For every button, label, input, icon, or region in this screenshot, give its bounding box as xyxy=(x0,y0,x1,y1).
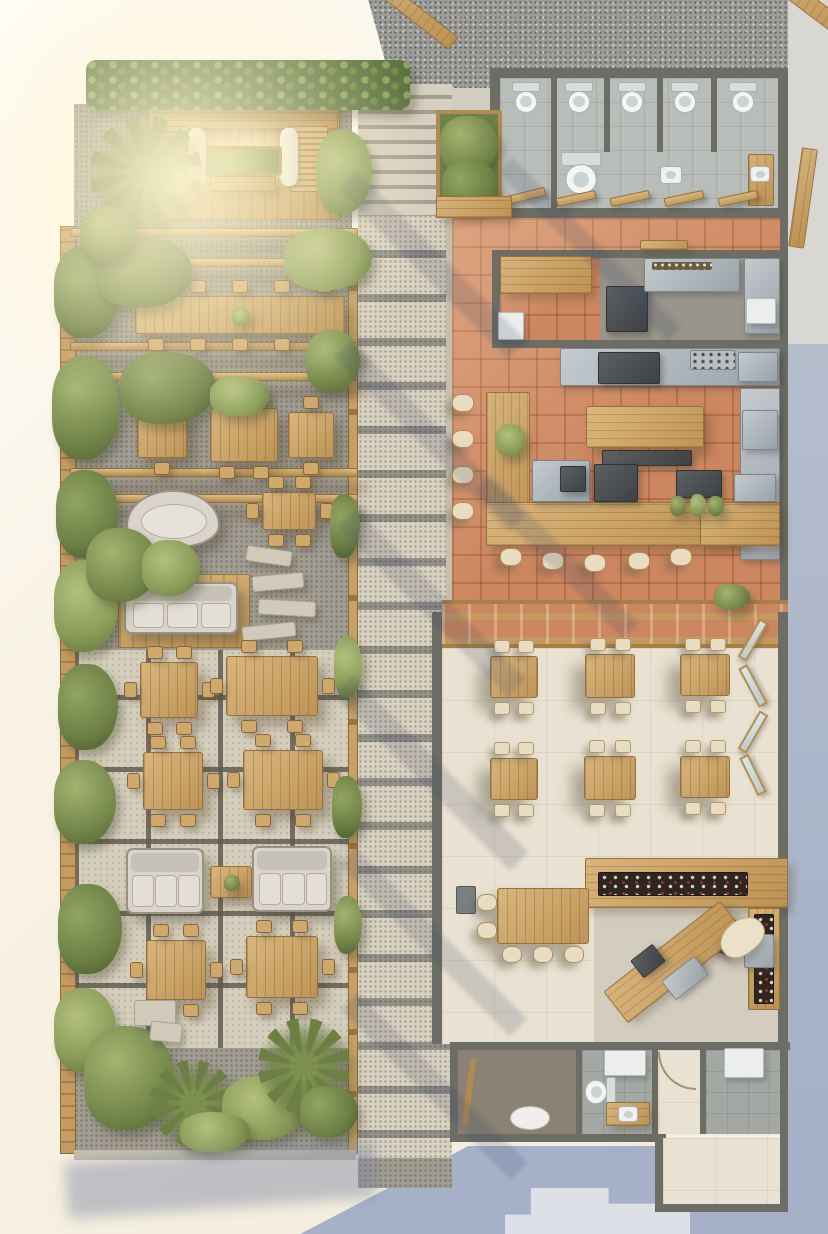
plant xyxy=(180,1112,250,1152)
chair xyxy=(303,462,319,475)
bar-stool xyxy=(670,548,692,566)
outdoor-table xyxy=(288,412,334,458)
plant xyxy=(58,884,122,974)
indoor-table xyxy=(680,654,730,696)
chair xyxy=(274,280,290,293)
appliance xyxy=(606,286,648,332)
plant xyxy=(316,130,372,214)
plant xyxy=(334,896,362,954)
chair xyxy=(615,740,631,753)
bar-stool xyxy=(584,554,606,572)
chair xyxy=(130,962,143,978)
indoor-table xyxy=(585,654,635,698)
plant xyxy=(58,664,118,750)
outdoor-table xyxy=(246,936,318,998)
bar-stool xyxy=(500,548,522,566)
chair xyxy=(127,773,140,789)
chair xyxy=(295,534,311,547)
appliance xyxy=(560,466,586,492)
chair xyxy=(518,742,534,755)
indoor-table xyxy=(680,756,730,798)
chair xyxy=(494,804,510,817)
chair xyxy=(190,280,206,293)
outdoor-table xyxy=(146,940,206,1000)
chair xyxy=(710,802,726,815)
chair xyxy=(183,924,199,937)
chair xyxy=(268,534,284,547)
wood-counter xyxy=(436,196,512,218)
chair xyxy=(176,646,192,659)
trash-bin xyxy=(456,886,476,914)
bar-stool xyxy=(452,466,474,484)
wall xyxy=(657,78,663,152)
outdoor-table xyxy=(143,752,203,810)
chair xyxy=(685,802,701,815)
wall xyxy=(450,1134,666,1142)
wall xyxy=(655,1204,788,1212)
appliance xyxy=(604,1050,646,1076)
chair xyxy=(183,1004,199,1017)
plant xyxy=(52,356,120,460)
chair xyxy=(210,962,223,978)
chair xyxy=(710,740,726,753)
outdoor-table xyxy=(243,750,323,810)
sofa xyxy=(252,846,332,912)
chair xyxy=(292,1002,308,1015)
sofa xyxy=(126,848,204,914)
bar-stool xyxy=(452,502,474,520)
sink xyxy=(618,1106,638,1122)
wall xyxy=(576,1050,582,1134)
bottle-rack xyxy=(652,262,712,270)
chair xyxy=(256,1002,272,1015)
chair xyxy=(176,722,192,735)
plant xyxy=(120,352,216,424)
chair xyxy=(303,396,319,409)
chair xyxy=(241,720,257,733)
toilet xyxy=(615,82,647,112)
appliance xyxy=(598,352,660,384)
chair xyxy=(518,804,534,817)
plant xyxy=(142,540,200,596)
chair xyxy=(590,638,606,651)
chair xyxy=(148,338,164,351)
chair xyxy=(124,682,137,698)
plant xyxy=(670,496,686,516)
bar-stool xyxy=(452,430,474,448)
chair xyxy=(685,638,701,651)
chair xyxy=(494,640,510,653)
dining-floor xyxy=(663,1138,780,1204)
mop-sink xyxy=(510,1106,550,1130)
plant xyxy=(80,206,136,262)
toilet xyxy=(726,82,758,112)
plant xyxy=(496,424,526,456)
bar-stool xyxy=(477,922,497,939)
table-plant xyxy=(232,307,250,325)
toilet xyxy=(509,82,541,112)
chair xyxy=(287,720,303,733)
chair xyxy=(147,646,163,659)
chair xyxy=(295,734,311,747)
table-plant xyxy=(224,875,240,891)
plant xyxy=(330,494,360,558)
appliance xyxy=(724,1048,764,1078)
indoor-table xyxy=(584,756,636,800)
chair xyxy=(494,742,510,755)
chair xyxy=(268,476,284,489)
gravel-ground xyxy=(358,1158,452,1188)
indoor-table xyxy=(497,888,589,944)
plant xyxy=(306,330,360,392)
bar-stool xyxy=(502,946,522,963)
chair xyxy=(590,702,606,715)
wall xyxy=(432,908,442,1044)
bar-stool xyxy=(533,946,553,963)
outdoor-table xyxy=(226,656,318,716)
chair xyxy=(256,920,272,933)
toilet xyxy=(558,152,603,195)
chair xyxy=(295,814,311,827)
chair xyxy=(322,959,335,975)
indoor-table xyxy=(490,758,538,800)
hedge xyxy=(86,60,410,110)
chair xyxy=(589,740,605,753)
chair xyxy=(241,640,257,653)
bar-stool xyxy=(452,394,474,412)
toilet xyxy=(668,82,700,112)
kitchen-island xyxy=(586,406,704,448)
appliance xyxy=(738,352,778,382)
chair xyxy=(295,476,311,489)
floor-plan-render xyxy=(0,0,828,1234)
sink xyxy=(750,166,770,182)
outdoor-table xyxy=(140,662,198,718)
chair xyxy=(190,338,206,351)
chair xyxy=(615,638,631,651)
appliance xyxy=(746,298,776,324)
chair xyxy=(710,700,726,713)
wood-bench xyxy=(210,176,276,192)
outdoor-table xyxy=(262,492,316,530)
chair xyxy=(589,804,605,817)
wall xyxy=(780,1042,788,1212)
indoor-table xyxy=(490,656,538,698)
plant xyxy=(54,760,116,844)
plant xyxy=(284,228,372,290)
chair xyxy=(154,462,170,475)
chair xyxy=(615,702,631,715)
chair xyxy=(253,466,269,479)
bar-stool xyxy=(542,552,564,570)
plant xyxy=(300,1086,358,1138)
plant xyxy=(714,584,750,610)
exterior-ground xyxy=(788,344,828,1234)
bar-stool xyxy=(564,946,584,963)
wall xyxy=(450,1042,458,1142)
toilet xyxy=(562,82,594,112)
planter-trough xyxy=(206,146,282,176)
chair xyxy=(153,924,169,937)
chair xyxy=(232,280,248,293)
plant xyxy=(210,376,270,416)
bar-stool xyxy=(477,894,497,911)
curb xyxy=(446,218,452,614)
chair xyxy=(227,772,240,788)
chair xyxy=(150,814,166,827)
coffee-table xyxy=(210,866,252,898)
chair xyxy=(232,338,248,351)
wine-display xyxy=(598,872,748,896)
chair xyxy=(292,920,308,933)
chair xyxy=(494,702,510,715)
wood-counter xyxy=(640,240,688,250)
wall xyxy=(711,78,717,152)
chair xyxy=(180,814,196,827)
stepping-stone xyxy=(258,598,317,617)
stepping-stone xyxy=(149,1020,183,1043)
steel-counter xyxy=(734,474,776,502)
bar-stool xyxy=(628,552,650,570)
chair xyxy=(207,773,220,789)
wall xyxy=(652,1050,658,1134)
chair xyxy=(246,503,259,519)
chair xyxy=(147,722,163,735)
chair xyxy=(322,678,335,694)
chair xyxy=(685,740,701,753)
plant xyxy=(690,494,706,516)
chair xyxy=(287,640,303,653)
wall xyxy=(432,612,442,908)
chair xyxy=(219,466,235,479)
chair xyxy=(685,700,701,713)
chair xyxy=(615,804,631,817)
sink xyxy=(660,166,682,184)
chair xyxy=(255,734,271,747)
appliance xyxy=(594,464,638,502)
wall xyxy=(604,78,610,152)
wall xyxy=(700,1050,706,1134)
chair xyxy=(230,959,243,975)
wall xyxy=(551,78,557,152)
plant xyxy=(334,636,362,698)
glass-rack xyxy=(690,350,736,370)
chair xyxy=(255,814,271,827)
wood-counter xyxy=(500,256,592,294)
appliance xyxy=(742,410,778,450)
chair xyxy=(518,702,534,715)
chair xyxy=(518,640,534,653)
wall xyxy=(655,1134,663,1212)
chair xyxy=(710,638,726,651)
outdoor-table xyxy=(210,408,278,462)
chair xyxy=(150,736,166,749)
curtain xyxy=(280,128,298,186)
chair xyxy=(180,736,196,749)
chair xyxy=(274,338,290,351)
chair xyxy=(210,678,223,694)
plant xyxy=(332,776,362,838)
plant xyxy=(708,496,724,516)
appliance xyxy=(498,312,524,340)
